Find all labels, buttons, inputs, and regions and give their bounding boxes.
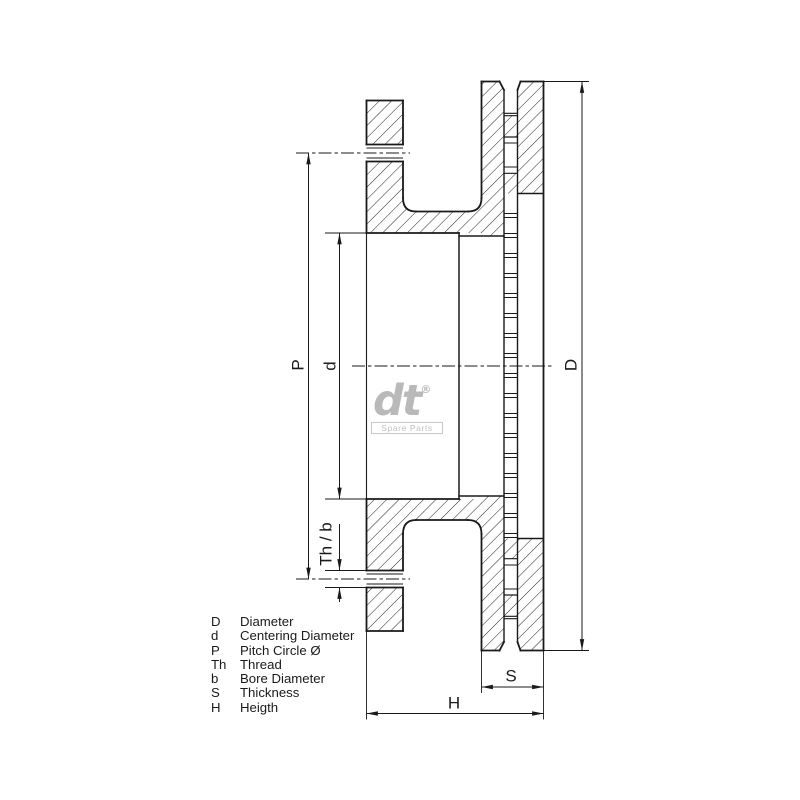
legend-term: Centering Diameter [240,629,354,643]
legend-abbr: d [211,629,240,643]
legend-abbr: D [211,615,240,629]
legend-row: P Pitch Circle Ø [211,644,354,658]
legend-row: d Centering Diameter [211,629,354,643]
brand-logo-mark: dt® [371,371,445,420]
legend-row: b Bore Diameter [211,672,354,686]
dim-label-thickness: S [505,668,516,685]
dim-label-pitch-circle: P [290,359,307,370]
brand-logo-text: dt [373,376,420,426]
legend-term: Heigth [240,701,278,715]
dim-label-thread-bore: Th / b [318,522,335,565]
legend-row: S Thickness [211,686,354,700]
legend: D Diameter d Centering Diameter P Pitch … [211,615,354,715]
legend-term: Bore Diameter [240,672,325,686]
thin-lines [325,82,589,720]
legend-row: H Heigth [211,701,354,715]
dim-label-centering-diameter: d [322,361,339,370]
legend-abbr: P [211,644,240,658]
legend-term: Pitch Circle Ø [240,644,321,658]
legend-abbr: Th [211,658,240,672]
legend-abbr: b [211,672,240,686]
legend-term: Thickness [240,686,299,700]
dim-label-outer-diameter: D [563,359,580,371]
legend-abbr: S [211,686,240,700]
brand-tagline: Spare Parts [371,422,443,434]
legend-abbr: H [211,701,240,715]
legend-term: Thread [240,658,282,672]
legend-row: D Diameter [211,615,354,629]
registered-trademark-icon: ® [420,383,431,396]
legend-term: Diameter [240,615,294,629]
brand-logo: dt® Spare Parts [371,371,445,434]
technical-drawing-page: dt® Spare Parts P d Th / b D S H D Diame… [0,0,800,800]
legend-row: Th Thread [211,658,354,672]
dim-label-height: H [448,695,460,712]
